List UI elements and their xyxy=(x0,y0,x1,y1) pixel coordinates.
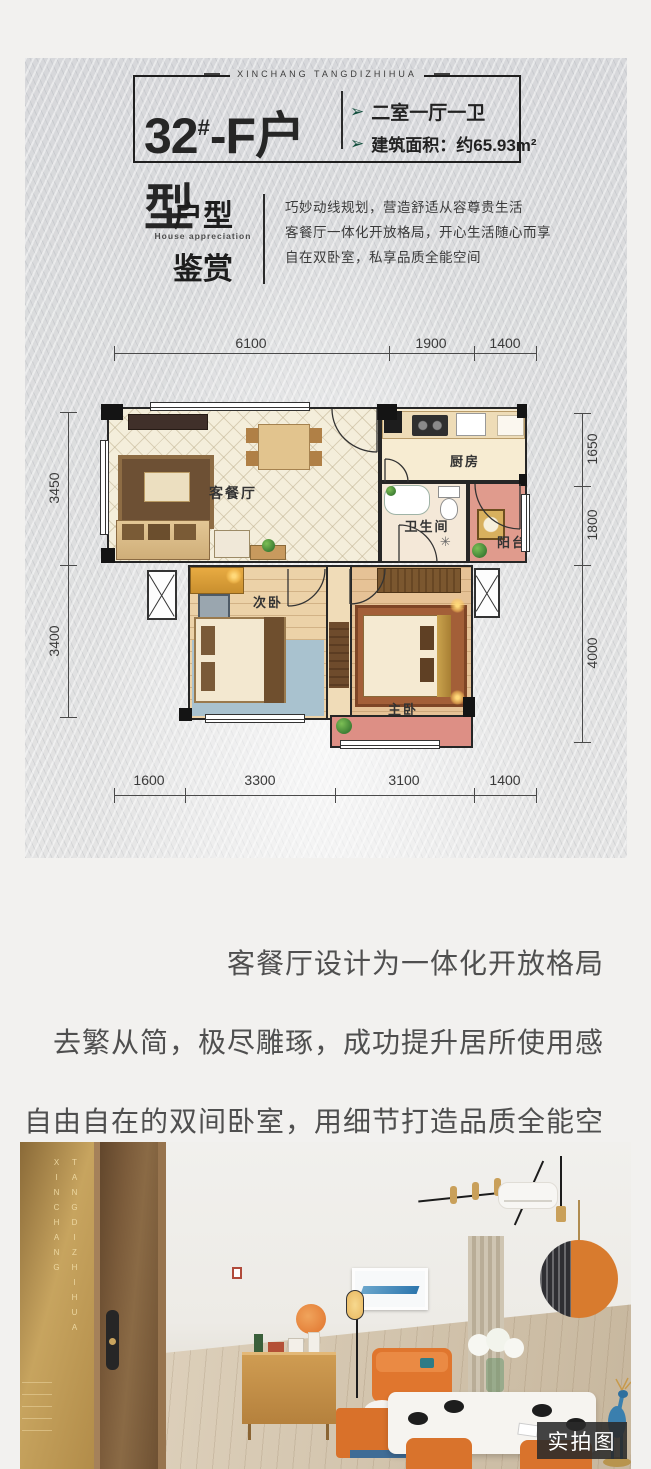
dim-tick xyxy=(60,565,77,566)
tagline-line: 客餐厅设计为一体化开放格局 xyxy=(0,942,604,982)
dim-value: 1800 xyxy=(584,497,600,553)
entry-door xyxy=(94,1142,164,1469)
plate xyxy=(532,1404,552,1417)
white-flowers xyxy=(504,1338,524,1358)
dim-tick xyxy=(114,346,115,361)
orange-flowers xyxy=(296,1304,326,1334)
dim-tick xyxy=(114,788,115,803)
dim-tick xyxy=(536,788,537,803)
dim-tick xyxy=(574,486,591,487)
door-handle xyxy=(109,1338,116,1345)
dim-tick xyxy=(60,717,77,718)
sideboard-leg xyxy=(326,1424,329,1440)
decor-bottle xyxy=(254,1334,263,1354)
poster-page: XINCHANG TANGDIZHIHUA 32#-F户型 ➢ 二室一厅一卫 ➢… xyxy=(0,0,651,1469)
name-card xyxy=(517,1423,538,1438)
pendant-rod xyxy=(560,1156,562,1208)
band-line xyxy=(22,1418,52,1419)
plate xyxy=(444,1400,464,1413)
dim-tick xyxy=(574,742,591,743)
dim-tick xyxy=(536,346,537,361)
dim-value: 1600 xyxy=(119,772,179,788)
dim-value: 3300 xyxy=(230,772,290,788)
dim-tick xyxy=(574,413,591,414)
sideboard-leg xyxy=(248,1424,251,1440)
floor-lamp-shade xyxy=(346,1290,364,1320)
dim-tick xyxy=(335,788,336,803)
air-conditioner xyxy=(498,1182,558,1209)
dim-value: 1650 xyxy=(584,421,600,477)
dim-value: 4000 xyxy=(584,625,600,681)
dining-chair-photo xyxy=(406,1438,472,1469)
dim-value: 6100 xyxy=(221,335,281,351)
light-bulb xyxy=(472,1182,479,1200)
art-brushstroke xyxy=(361,1286,420,1294)
dimension-line-bottom xyxy=(114,795,536,796)
dim-tick xyxy=(474,788,475,803)
dim-tick xyxy=(389,346,390,361)
dimension-line-right xyxy=(582,413,583,742)
band-line xyxy=(22,1382,52,1383)
glass-vase xyxy=(486,1358,504,1392)
plate xyxy=(408,1412,428,1425)
photo-badge: 实拍图 xyxy=(537,1422,627,1459)
ac-vent xyxy=(504,1200,552,1202)
dim-value: 1400 xyxy=(475,335,535,351)
dim-value: 1400 xyxy=(475,772,535,788)
vertical-brand-1: XINCHANG xyxy=(52,1158,61,1278)
wall-plaque xyxy=(232,1267,242,1279)
round-mirror xyxy=(540,1240,618,1318)
band-line xyxy=(22,1406,52,1407)
light-bulb xyxy=(450,1186,457,1204)
mirror-rod xyxy=(578,1200,580,1242)
sideboard xyxy=(242,1352,336,1424)
dim-value: 3400 xyxy=(46,613,62,669)
interior-photo: XINCHANG TANGDIZHIHUA xyxy=(20,1142,631,1469)
sofa-back-cushion xyxy=(376,1352,448,1372)
vertical-brand-2: TANGDIZHIHUA xyxy=(70,1158,79,1338)
dim-tick xyxy=(185,788,186,803)
teal-pillow xyxy=(420,1358,434,1368)
dim-tick xyxy=(60,412,77,413)
dim-tick xyxy=(574,565,591,566)
pendant-lamp xyxy=(556,1206,566,1222)
door-frame xyxy=(94,1142,100,1469)
band-line xyxy=(22,1430,52,1431)
dim-value: 1900 xyxy=(401,335,461,351)
door-frame xyxy=(158,1142,166,1469)
tagline-line: 去繁从简，极尽雕琢，成功提升居所使用感 xyxy=(0,1021,604,1061)
dim-value: 3100 xyxy=(374,772,434,788)
band-line xyxy=(22,1394,52,1395)
dim-value: 3450 xyxy=(46,460,62,516)
